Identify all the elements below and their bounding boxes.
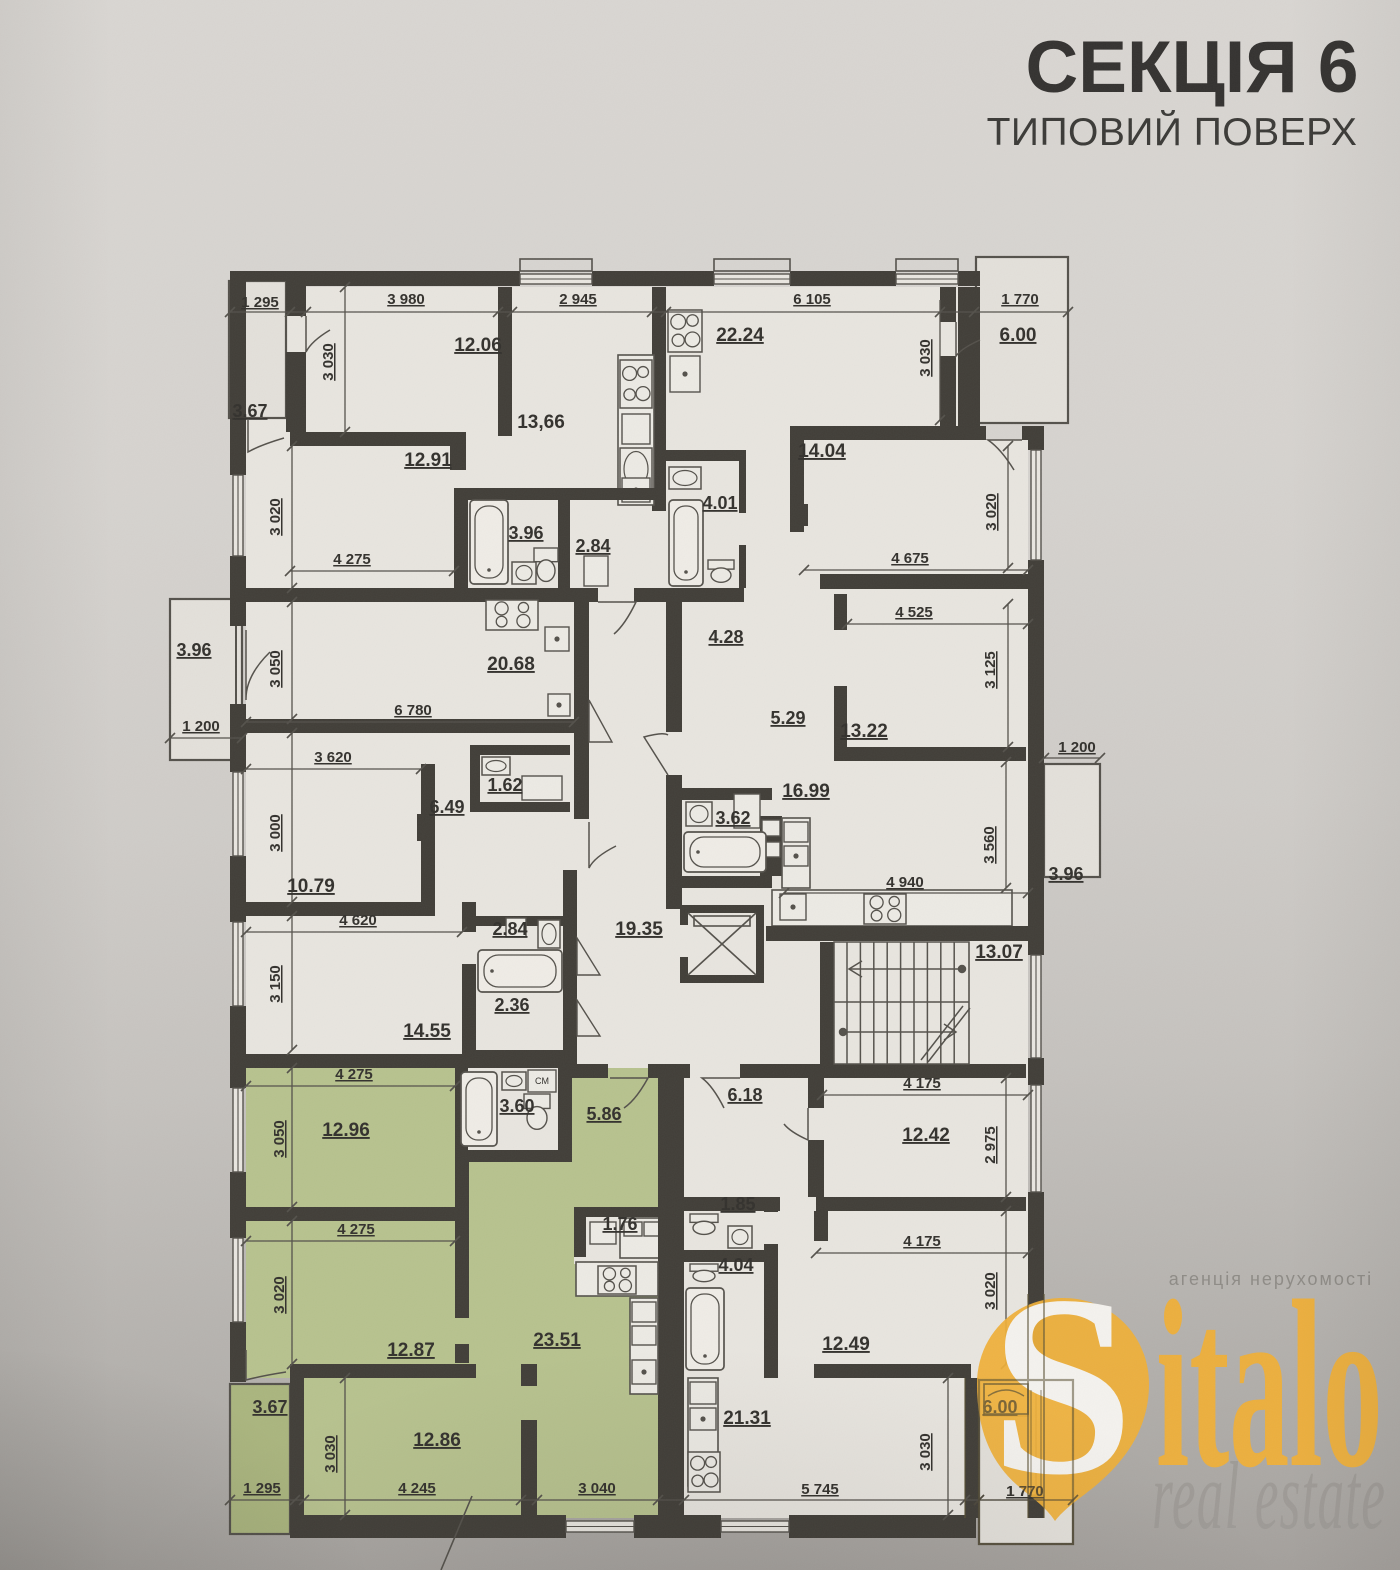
svg-text:5 745: 5 745 — [801, 1481, 839, 1498]
svg-text:22.24: 22.24 — [716, 325, 764, 346]
svg-text:6.00: 6.00 — [1000, 325, 1037, 346]
svg-text:3.96: 3.96 — [1048, 864, 1083, 884]
svg-text:1 295: 1 295 — [243, 1480, 281, 1497]
svg-text:4.04: 4.04 — [718, 1255, 753, 1275]
svg-text:12.49: 12.49 — [822, 1334, 870, 1355]
svg-text:23.51: 23.51 — [533, 1330, 581, 1351]
svg-text:4 175: 4 175 — [903, 1075, 941, 1092]
svg-text:1.76: 1.76 — [602, 1214, 637, 1234]
svg-text:12.91: 12.91 — [404, 450, 452, 471]
svg-text:5.86: 5.86 — [586, 1104, 621, 1124]
svg-text:1 295: 1 295 — [241, 294, 279, 311]
svg-text:3.96: 3.96 — [508, 523, 543, 543]
svg-text:3.62: 3.62 — [715, 808, 750, 828]
svg-text:2 945: 2 945 — [559, 291, 597, 308]
svg-text:СМ: СМ — [535, 1076, 549, 1086]
svg-text:1 200: 1 200 — [1058, 739, 1096, 756]
svg-text:4 940: 4 940 — [886, 874, 924, 891]
svg-text:3 030: 3 030 — [917, 1433, 934, 1471]
svg-text:3.67: 3.67 — [252, 1397, 287, 1417]
svg-text:6.18: 6.18 — [727, 1085, 762, 1105]
svg-text:ТИПОВИЙ ПОВЕРХ: ТИПОВИЙ ПОВЕРХ — [987, 109, 1358, 154]
svg-text:2.84: 2.84 — [492, 919, 527, 939]
svg-text:13.07: 13.07 — [975, 942, 1023, 963]
svg-text:12.86: 12.86 — [413, 1430, 461, 1451]
svg-text:10.79: 10.79 — [287, 876, 335, 897]
svg-text:3.60: 3.60 — [499, 1096, 534, 1116]
svg-text:12.96: 12.96 — [322, 1120, 370, 1141]
svg-text:real estate: real estate — [1152, 1443, 1386, 1549]
svg-text:6 105: 6 105 — [793, 291, 831, 308]
svg-text:СЕКЦІЯ 6: СЕКЦІЯ 6 — [1026, 27, 1359, 108]
svg-text:6.49: 6.49 — [429, 797, 464, 817]
svg-text:19.35: 19.35 — [615, 919, 663, 940]
svg-text:1.85: 1.85 — [720, 1194, 755, 1214]
svg-text:3.96: 3.96 — [176, 640, 211, 660]
svg-text:3 030: 3 030 — [917, 339, 934, 377]
svg-text:3 020: 3 020 — [271, 1276, 288, 1314]
svg-text:3 150: 3 150 — [267, 965, 284, 1003]
svg-text:3 030: 3 030 — [320, 343, 337, 381]
svg-text:3 980: 3 980 — [387, 291, 425, 308]
svg-text:4 525: 4 525 — [895, 604, 933, 621]
svg-text:2.36: 2.36 — [494, 995, 529, 1015]
svg-text:3 620: 3 620 — [314, 749, 352, 766]
svg-text:3 000: 3 000 — [267, 814, 284, 852]
svg-text:21.31: 21.31 — [723, 1408, 771, 1429]
svg-text:3 020: 3 020 — [983, 493, 1000, 531]
svg-text:Львів: Львів — [1042, 1547, 1079, 1564]
svg-text:3 030: 3 030 — [322, 1435, 339, 1473]
svg-text:1 770: 1 770 — [1001, 291, 1039, 308]
svg-text:13,66: 13,66 — [517, 412, 565, 433]
svg-text:4 620: 4 620 — [339, 912, 377, 929]
svg-text:12.42: 12.42 — [902, 1125, 950, 1146]
svg-text:20.68: 20.68 — [487, 654, 535, 675]
svg-text:2.84: 2.84 — [575, 536, 610, 556]
svg-text:4 275: 4 275 — [335, 1066, 373, 1083]
svg-text:4.28: 4.28 — [708, 627, 743, 647]
svg-text:14.55: 14.55 — [403, 1021, 451, 1042]
svg-text:3 050: 3 050 — [271, 1120, 288, 1158]
svg-text:4 275: 4 275 — [337, 1221, 375, 1238]
svg-text:3 560: 3 560 — [981, 826, 998, 864]
svg-text:14.04: 14.04 — [798, 441, 846, 462]
svg-text:12.06: 12.06 — [454, 335, 502, 356]
svg-text:6 780: 6 780 — [394, 702, 432, 719]
svg-text:5.29: 5.29 — [770, 708, 805, 728]
svg-text:4.01: 4.01 — [702, 493, 737, 513]
svg-text:3 125: 3 125 — [982, 651, 999, 689]
svg-text:4 245: 4 245 — [398, 1480, 436, 1497]
svg-text:3 040: 3 040 — [578, 1480, 616, 1497]
svg-text:16.99: 16.99 — [782, 781, 830, 802]
svg-text:4 175: 4 175 — [903, 1233, 941, 1250]
svg-text:1 200: 1 200 — [182, 718, 220, 735]
svg-text:3.67: 3.67 — [232, 401, 267, 421]
svg-text:3 050: 3 050 — [267, 650, 284, 688]
svg-text:4 675: 4 675 — [891, 550, 929, 567]
svg-text:3 020: 3 020 — [267, 498, 284, 536]
svg-text:2 975: 2 975 — [982, 1126, 999, 1164]
svg-text:1.62: 1.62 — [487, 775, 522, 795]
svg-text:1 770: 1 770 — [1006, 1483, 1044, 1500]
svg-text:12.87: 12.87 — [387, 1340, 435, 1361]
svg-text:13.22: 13.22 — [840, 721, 888, 742]
svg-text:4 275: 4 275 — [333, 551, 371, 568]
